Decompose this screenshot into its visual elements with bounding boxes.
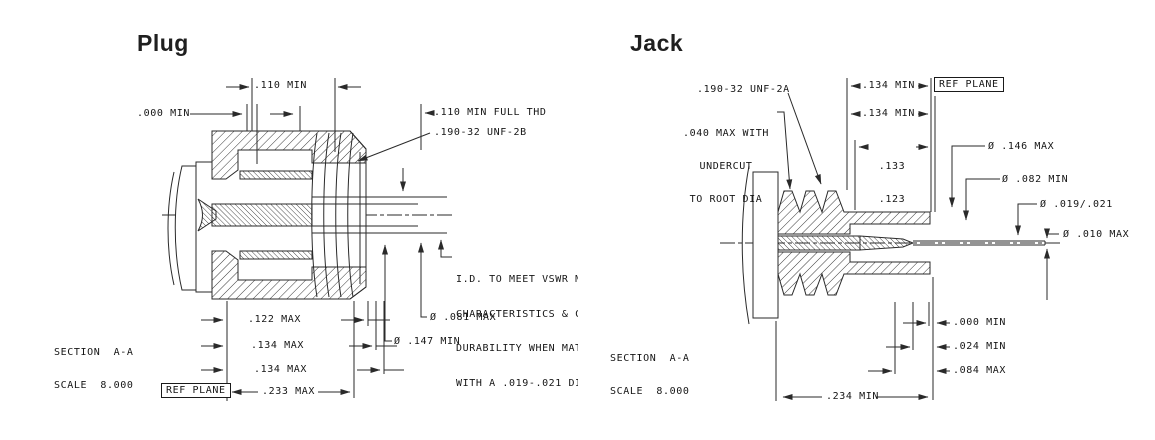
- plug-dim-000-min: .000 MIN: [137, 108, 190, 119]
- jack-dim-234-min: .234 MIN: [826, 391, 879, 402]
- plug-dim-110-min: .110 MIN: [254, 80, 307, 91]
- plug-dim-122-max: .122 MAX: [248, 314, 301, 325]
- jack-section-label: SECTION A-A SCALE 8.000: [610, 331, 689, 419]
- jack-dim-133: .133: [862, 161, 922, 172]
- drawing-canvas: Plug .110 MIN .000 MIN .110 MIN FULL THD…: [0, 0, 1155, 440]
- plug-note-line-4: WITH A .019-.021 DIA: [456, 378, 578, 390]
- plug-dim-110-full-thd: .110 MIN FULL THD: [434, 107, 547, 118]
- jack-dia-146-max: Ø .146 MAX: [988, 141, 1054, 152]
- jack-dia-019-021: Ø .019/.021: [1040, 199, 1113, 210]
- plug-dia-147-min: Ø .147 MIN: [394, 336, 460, 347]
- plug-dim-134-max-b: .134 MAX: [254, 364, 307, 375]
- plug-thread-spec: .190-32 UNF-2B: [434, 127, 527, 138]
- plug-dim-233-max: .233 MAX: [262, 386, 315, 397]
- jack-thread-spec: .190-32 UNF-2A: [697, 84, 790, 95]
- plug-note-line-1: I.D. TO MEET VSWR MA: [456, 274, 578, 286]
- jack-dim-024-min: .024 MIN: [953, 341, 1006, 352]
- jack-section-line: SECTION A-A: [610, 353, 689, 364]
- plug-section-label: SECTION A-A SCALE 8.000: [54, 325, 133, 413]
- plug-section-line: SECTION A-A: [54, 347, 133, 358]
- jack-undercut-line-3: TO ROOT DIA: [675, 194, 777, 205]
- jack-undercut-note: .040 MAX WITH UNDERCUT TO ROOT DIA: [675, 106, 777, 227]
- jack-dim-000-min: .000 MIN: [953, 317, 1006, 328]
- plug-scale-line: SCALE 8.000: [54, 380, 133, 391]
- jack-dim-084-max: .084 MAX: [953, 365, 1006, 376]
- jack-dia-082-min: Ø .082 MIN: [1002, 174, 1068, 185]
- plug-title: Plug: [137, 30, 189, 57]
- jack-dim-133-123: .133 .123: [862, 139, 922, 227]
- plug-note-line-3: DURABILITY WHEN MATE: [456, 343, 578, 355]
- jack-dim-134-min-a: .134 MIN: [862, 80, 915, 91]
- jack-dia-010-max: Ø .010 MAX: [1063, 229, 1155, 240]
- jack-scale-line: SCALE 8.000: [610, 386, 689, 397]
- plug-dim-134-max-a: .134 MAX: [251, 340, 304, 351]
- jack-undercut-line-2: UNDERCUT: [675, 161, 777, 172]
- plug-body: [162, 131, 452, 299]
- jack-ref-plane-box: REF PLANE: [934, 77, 1004, 92]
- plug-vswr-note: I.D. TO MEET VSWR MA CHARACTERISTICS & C…: [456, 251, 578, 412]
- plug-dia-081-max: Ø .081 MAX: [430, 312, 496, 323]
- jack-dim-134-min-b: .134 MIN: [862, 108, 915, 119]
- plug-ref-plane-box: REF PLANE: [161, 383, 231, 398]
- jack-title: Jack: [630, 30, 683, 57]
- jack-undercut-line-1: .040 MAX WITH: [675, 128, 777, 139]
- jack-dim-123: .123: [862, 194, 922, 205]
